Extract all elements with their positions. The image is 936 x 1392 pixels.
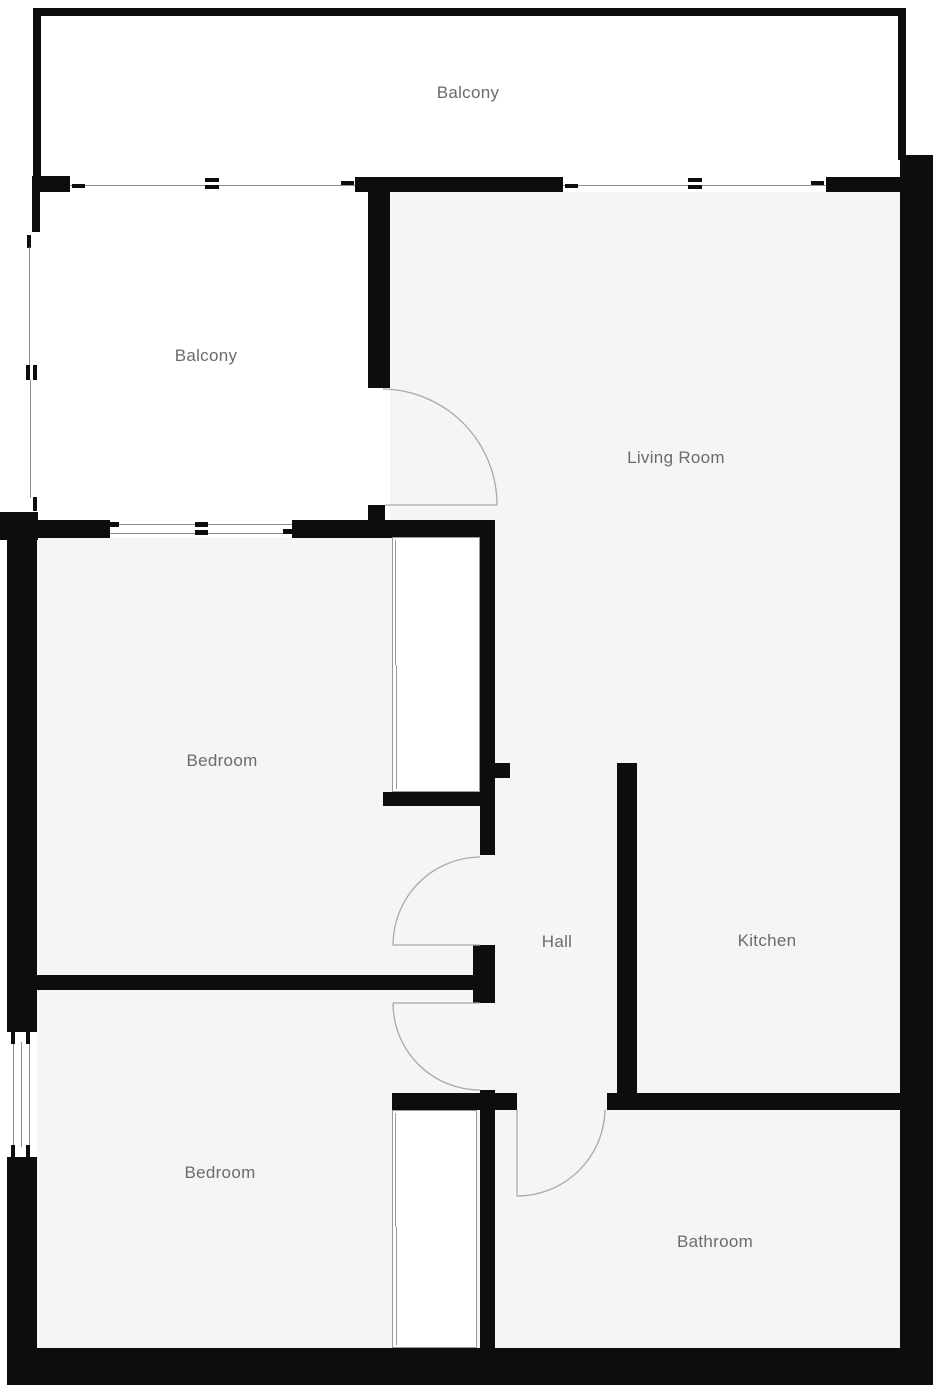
window-tick bbox=[688, 185, 702, 189]
wardrobe-door-line bbox=[395, 1113, 396, 1227]
bedroom-doors-pier bbox=[473, 945, 495, 1003]
window-tick bbox=[26, 365, 30, 380]
north-wall-segment bbox=[355, 177, 563, 192]
north-wall-segment bbox=[32, 176, 70, 192]
room-label-bedroom-lower: Bedroom bbox=[184, 1163, 255, 1183]
window-tick bbox=[33, 365, 37, 380]
west-wall-upper bbox=[7, 540, 37, 1032]
east-wall bbox=[900, 155, 933, 1385]
room-label-balcony-top: Balcony bbox=[437, 83, 500, 103]
window-tick bbox=[283, 529, 292, 534]
window-tick bbox=[205, 178, 219, 182]
room-label-kitchen: Kitchen bbox=[738, 931, 797, 951]
window-tick bbox=[11, 1145, 15, 1157]
window-tick bbox=[688, 178, 702, 182]
bedroom1-north-wall bbox=[38, 520, 110, 538]
window-tick bbox=[811, 181, 824, 185]
room-label-balcony-left: Balcony bbox=[175, 346, 238, 366]
hall-stub-wall bbox=[480, 763, 510, 778]
window-glass bbox=[29, 247, 30, 367]
room-label-bathroom: Bathroom bbox=[677, 1232, 753, 1252]
wardrobe-door-line bbox=[395, 540, 396, 665]
window-tick bbox=[341, 181, 354, 185]
room-label-bedroom-upper: Bedroom bbox=[186, 751, 257, 771]
balcony-living-wall-upper bbox=[368, 192, 390, 388]
room-label-hall: Hall bbox=[542, 932, 573, 952]
window-tick bbox=[205, 185, 219, 189]
kitchen-west-wall bbox=[617, 763, 637, 1097]
window-tick bbox=[72, 184, 85, 188]
bedroom1-north-wall bbox=[292, 520, 495, 538]
window-tick bbox=[110, 522, 119, 527]
north-wall-segment bbox=[826, 177, 906, 192]
bedroom1-wardrobe-south-wall bbox=[383, 792, 480, 806]
bedroom2-east-wall bbox=[480, 1090, 495, 1348]
south-wall bbox=[7, 1348, 933, 1385]
floor-plan: Balcony Balcony Living Room Bedroom Hall… bbox=[0, 0, 936, 1392]
window-glass bbox=[13, 1042, 14, 1147]
bedroom2-northeast-wall bbox=[392, 1093, 517, 1110]
wardrobe-door-line bbox=[396, 665, 397, 789]
window-glass bbox=[30, 380, 31, 498]
window-tick bbox=[33, 497, 37, 511]
balcony-left-post bbox=[32, 192, 40, 232]
bedroom2-wardrobe bbox=[392, 1110, 477, 1348]
bedroom1-north-wall-block bbox=[0, 512, 38, 540]
room-label-living-room: Living Room bbox=[627, 448, 725, 468]
window-tick bbox=[195, 530, 208, 535]
balcony-top-north-wall bbox=[33, 8, 906, 16]
balcony-top-west-wall bbox=[33, 8, 41, 192]
bathroom-north-wall bbox=[607, 1093, 900, 1110]
bedroom1-wardrobe bbox=[392, 537, 480, 792]
bedroom1-east-wall bbox=[480, 538, 495, 855]
window-glass bbox=[21, 1042, 22, 1147]
balcony-top-east-wall bbox=[898, 8, 906, 160]
window-tick bbox=[26, 1032, 30, 1044]
window-tick bbox=[26, 1145, 30, 1157]
window-tick bbox=[11, 1032, 15, 1044]
window-tick bbox=[565, 184, 578, 188]
wardrobe-door-line bbox=[396, 1227, 397, 1345]
window-glass bbox=[29, 1042, 30, 1147]
window-tick bbox=[195, 522, 208, 527]
bedrooms-divider-wall bbox=[7, 975, 477, 990]
